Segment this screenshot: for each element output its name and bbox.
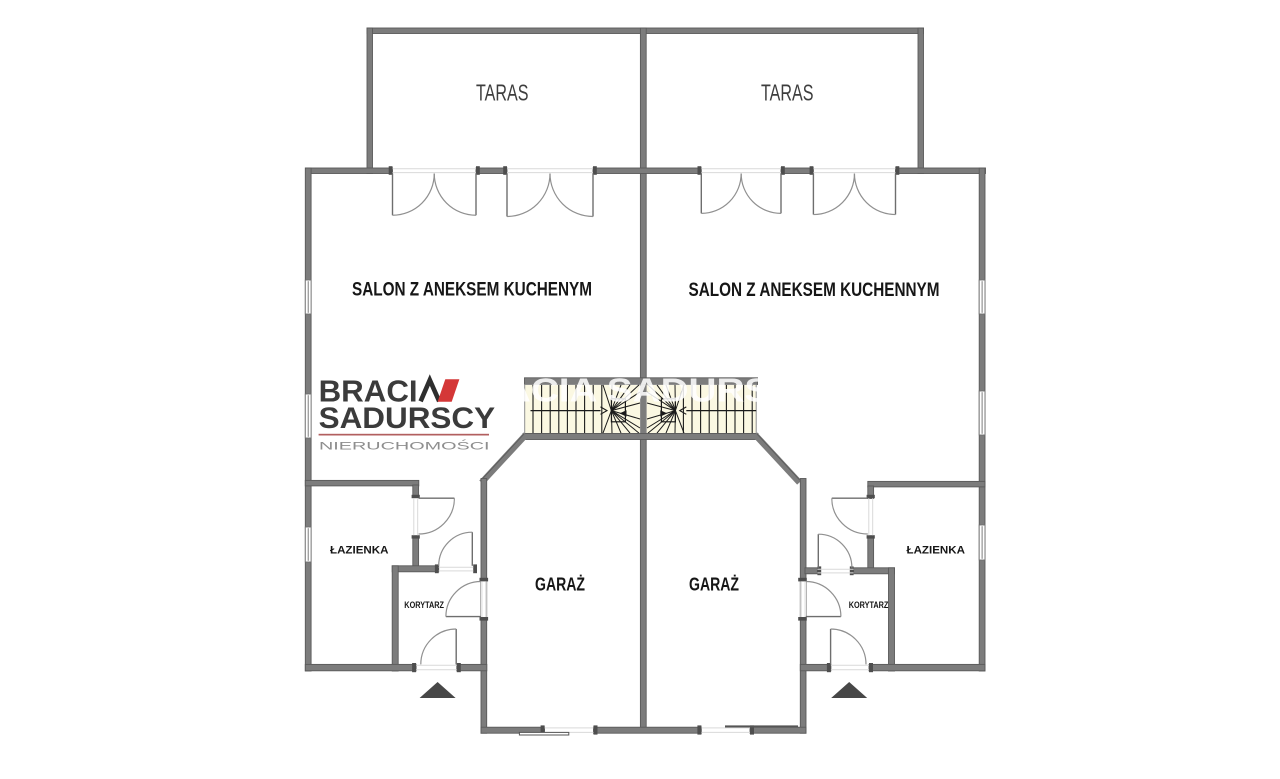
svg-text:SALON Z ANEKSEM KUCHENNYM: SALON Z ANEKSEM KUCHENNYM [689,279,940,301]
svg-text:ŁAZIENKA: ŁAZIENKA [907,544,966,556]
svg-text:KORYTARZ: KORYTARZ [849,600,889,610]
svg-text:SALON Z ANEKSEM KUCHENYM: SALON Z ANEKSEM KUCHENYM [352,278,592,300]
svg-text:KORYTARZ: KORYTARZ [404,600,444,610]
svg-text:GARAŻ: GARAŻ [535,574,585,595]
svg-text:ŁAZIENKA: ŁAZIENKA [330,544,389,556]
svg-text:TARAS: TARAS [476,80,529,106]
svg-text:BRACIA SADURSCY: BRACIA SADURSCY [447,372,824,409]
svg-text:GARAŻ: GARAŻ [689,574,739,595]
svg-text:TARAS: TARAS [761,80,814,106]
svg-text:NIERUCHOMOŚCI: NIERUCHOMOŚCI [319,439,490,452]
svg-text:SADURSCY: SADURSCY [319,402,496,435]
